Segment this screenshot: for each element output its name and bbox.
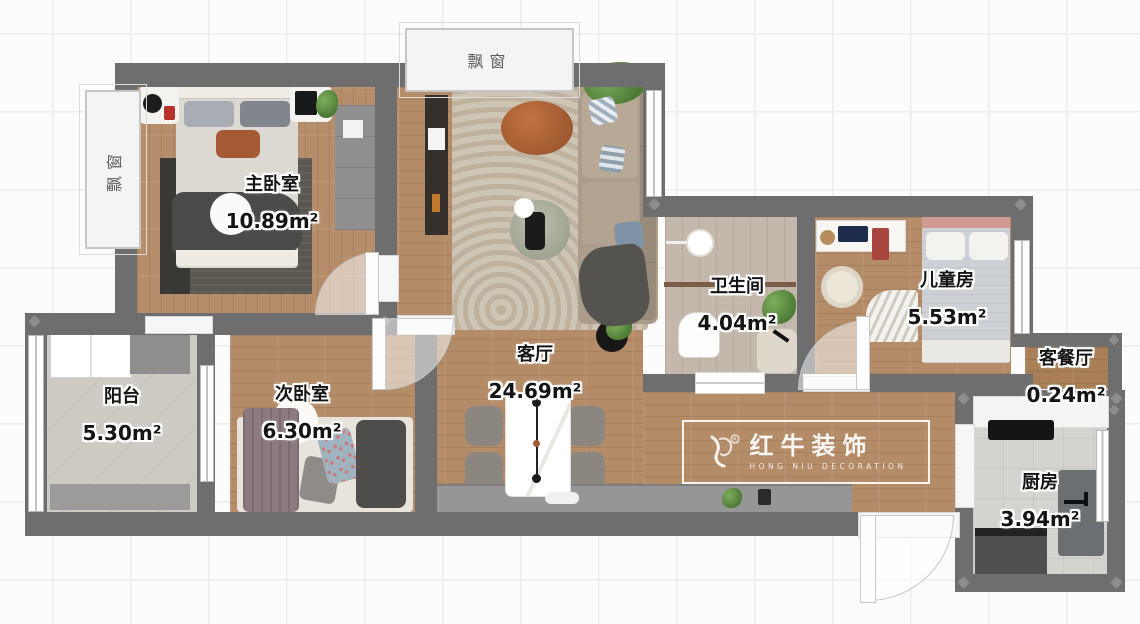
room-label-master: 主卧室 10.89m² <box>226 170 319 233</box>
room-label-kitchen: 厨房 3.94m² <box>1001 468 1080 531</box>
tv-cabinet <box>437 484 852 514</box>
room-label-bathroom: 卫生间 4.04m² <box>698 272 777 335</box>
second-pillow-dark <box>356 420 406 508</box>
kitchen-appliance <box>975 528 1047 580</box>
room-name: 卫生间 <box>698 272 777 298</box>
dining-chair-tl <box>465 406 503 446</box>
wall-bottom <box>25 512 862 536</box>
room-name: 主卧室 <box>226 170 319 196</box>
kids-door-leaf <box>856 316 870 390</box>
kitchen-window <box>1096 430 1109 522</box>
master-door-leaf <box>365 252 379 315</box>
balcony-window <box>28 335 44 512</box>
master-orange-cushion <box>216 130 260 158</box>
room-area: 3.94m² <box>1001 507 1080 531</box>
bay-window-left-label: 飘窗 <box>101 147 125 191</box>
balcony-cabinet <box>50 332 132 378</box>
kids-pillow-right <box>969 232 1008 260</box>
kids-desk-mirror <box>820 230 835 245</box>
coffee-table-bowl <box>514 198 534 218</box>
entry-door-leaf <box>860 515 876 603</box>
room-area: 5.30m² <box>83 421 162 445</box>
room-name: 客厅 <box>489 340 582 366</box>
master-pillow-left <box>184 101 234 127</box>
tv-panel-accent <box>432 194 440 212</box>
wall-master-right-upper <box>375 63 397 255</box>
balcony-mat <box>50 484 190 510</box>
bull-logo-icon: R <box>706 433 740 471</box>
kids-red-cabinet <box>872 228 889 260</box>
wall-kitchen-bottom <box>955 574 1125 592</box>
bathroom-door <box>695 372 765 394</box>
bay-window-top: 飘窗 <box>405 28 574 92</box>
balcony-divider-window <box>200 365 214 482</box>
entry-door-swing <box>868 515 954 601</box>
master-wardrobe-card <box>343 120 363 138</box>
master-pillow-right <box>240 101 290 127</box>
room-area: 5.53m² <box>908 305 987 329</box>
kids-bed-foot <box>922 340 1010 362</box>
wall-bath-kids-top <box>643 196 1033 217</box>
floor-plan-canvas: 飘窗 飘窗 主卧室 10.89m² 客厅 24.69m² 卫生间 4.04m² … <box>0 0 1140 624</box>
room-label-living: 客厅 24.69m² <box>489 340 582 403</box>
sofa-pillow-check <box>588 96 619 127</box>
bathroom-light-arm <box>666 241 690 244</box>
brand-subtitle: HONG NIU DECORATION <box>750 462 907 471</box>
kids-pillow-left <box>926 232 965 260</box>
nightstand-left-lamp <box>143 94 162 113</box>
coffee-table-tray <box>525 212 545 250</box>
room-area: 6.30m² <box>263 419 342 443</box>
kitchen-cooktop <box>988 420 1054 440</box>
room-area: 4.04m² <box>698 311 777 335</box>
room-name: 客餐厅 <box>1027 344 1106 370</box>
bay-window-left: 飘窗 <box>85 90 141 249</box>
nightstand-left-red-item <box>164 106 175 120</box>
room-label-second: 次卧室 6.30m² <box>263 380 342 443</box>
wall-kitchen-right <box>1107 390 1125 592</box>
kids-chair <box>821 266 863 308</box>
sofa-pillow-check2 <box>598 144 625 173</box>
svg-text:R: R <box>732 437 736 444</box>
room-label-balcony: 阳台 5.30m² <box>83 382 162 445</box>
brand-title: 红牛装饰 <box>750 434 907 458</box>
room-label-kids: 儿童房 5.53m² <box>908 266 987 329</box>
bay-window-top-label: 飘窗 <box>467 48 511 72</box>
living-right-window <box>646 90 662 197</box>
room-name: 厨房 <box>1001 468 1080 494</box>
pendant-lamp-bulb-bottom <box>532 474 541 483</box>
cabinet-dishes <box>545 492 579 504</box>
balcony-counter <box>130 332 190 374</box>
room-name: 次卧室 <box>263 380 342 406</box>
pendant-lamp-cord <box>536 398 538 480</box>
room-name: 儿童房 <box>908 266 987 292</box>
dining-chair-tr <box>567 406 605 446</box>
brand-text-block: 红牛装饰 HONG NIU DECORATION <box>750 434 907 471</box>
wall-master-top <box>115 63 407 87</box>
kids-right-window <box>1014 240 1030 334</box>
cabinet-black-item <box>758 489 771 505</box>
master-balcony-threshold <box>145 316 213 334</box>
room-area: 24.69m² <box>489 379 582 403</box>
pendant-lamp-bulb-mid <box>533 440 540 447</box>
room-label-dining-nook: 客餐厅 0.24m² <box>1027 344 1106 407</box>
master-bed-foot <box>176 250 298 266</box>
room-name: 阳台 <box>83 382 162 408</box>
tv-media-panel <box>425 95 448 235</box>
kids-laptop <box>838 226 868 242</box>
ottoman <box>501 101 573 155</box>
second-door-leaf <box>372 318 386 390</box>
nightstand-right-frame <box>295 91 317 115</box>
kitchen-faucet-stem <box>1084 492 1088 506</box>
bathroom-ceiling-light <box>688 231 712 255</box>
kitchen-door <box>955 424 975 508</box>
room-area: 0.24m² <box>1027 383 1106 407</box>
brand-watermark: R 红牛装饰 HONG NIU DECORATION <box>682 420 930 484</box>
room-area: 10.89m² <box>226 209 319 233</box>
tv-panel-card <box>428 128 445 150</box>
